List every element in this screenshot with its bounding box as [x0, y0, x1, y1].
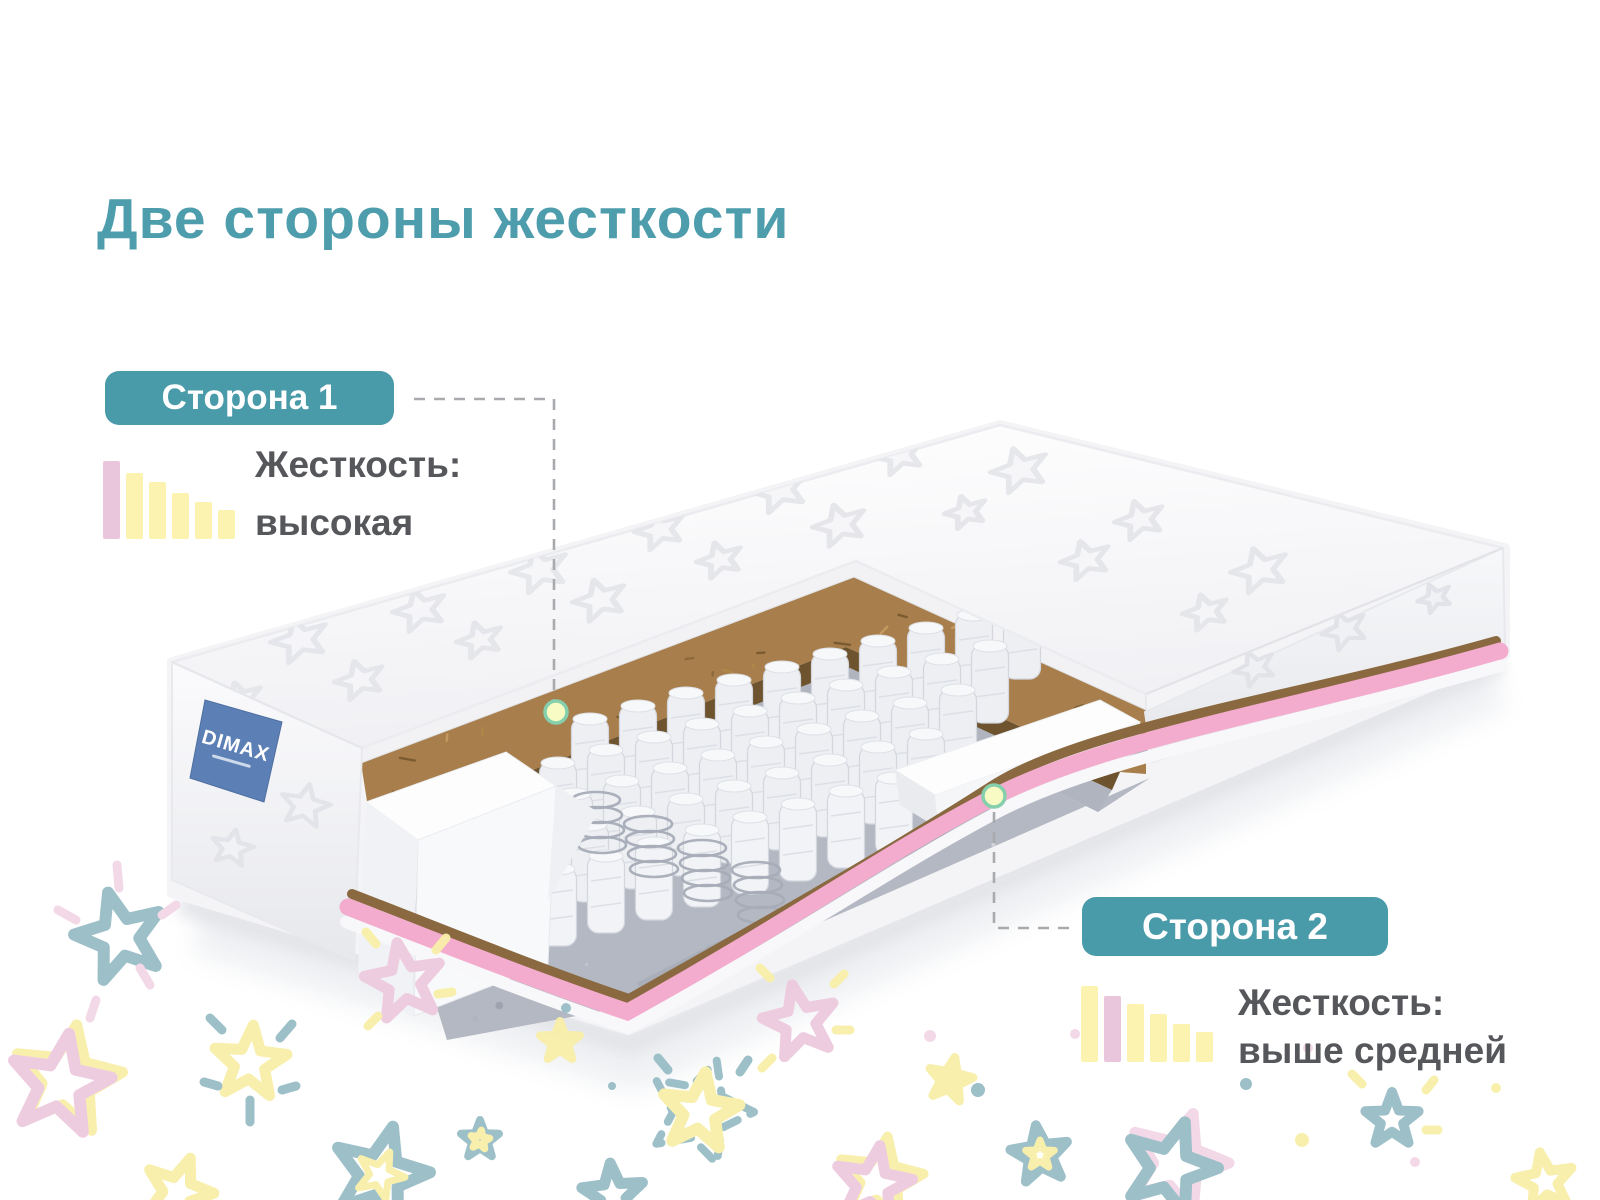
- firmness-bar: [172, 493, 189, 539]
- callout-dot-side1: [545, 701, 567, 723]
- side2-firmness-value: выше средней: [1238, 1032, 1507, 1069]
- side2-badge: Сторона 2: [1082, 897, 1388, 956]
- callout-dot-side2: [983, 785, 1005, 807]
- firmness-bar: [1173, 1024, 1190, 1062]
- side2-firmness-scale: [1081, 986, 1213, 1062]
- firmness-bar: [1127, 1004, 1144, 1062]
- firmness-bar: [218, 510, 235, 539]
- side1-firmness-label: Жесткость:: [255, 446, 461, 483]
- side2-firmness-label: Жесткость:: [1238, 984, 1444, 1021]
- infographic-page: DIMAX Две стороны жесткости Сторона 1 Ст…: [0, 0, 1600, 1200]
- firmness-bar: [1196, 1032, 1213, 1062]
- side1-badge: Сторона 1: [105, 371, 394, 425]
- firmness-bar: [103, 461, 120, 539]
- firmness-bar: [149, 482, 166, 539]
- firmness-bar: [1081, 986, 1098, 1062]
- firmness-bar: [1104, 996, 1121, 1062]
- side1-firmness-value: высокая: [255, 504, 413, 541]
- firmness-bar: [126, 473, 143, 539]
- firmness-bar: [195, 502, 212, 539]
- page-title: Две стороны жесткости: [97, 186, 789, 252]
- firmness-bar: [1150, 1014, 1167, 1062]
- side1-firmness-scale: [103, 461, 235, 539]
